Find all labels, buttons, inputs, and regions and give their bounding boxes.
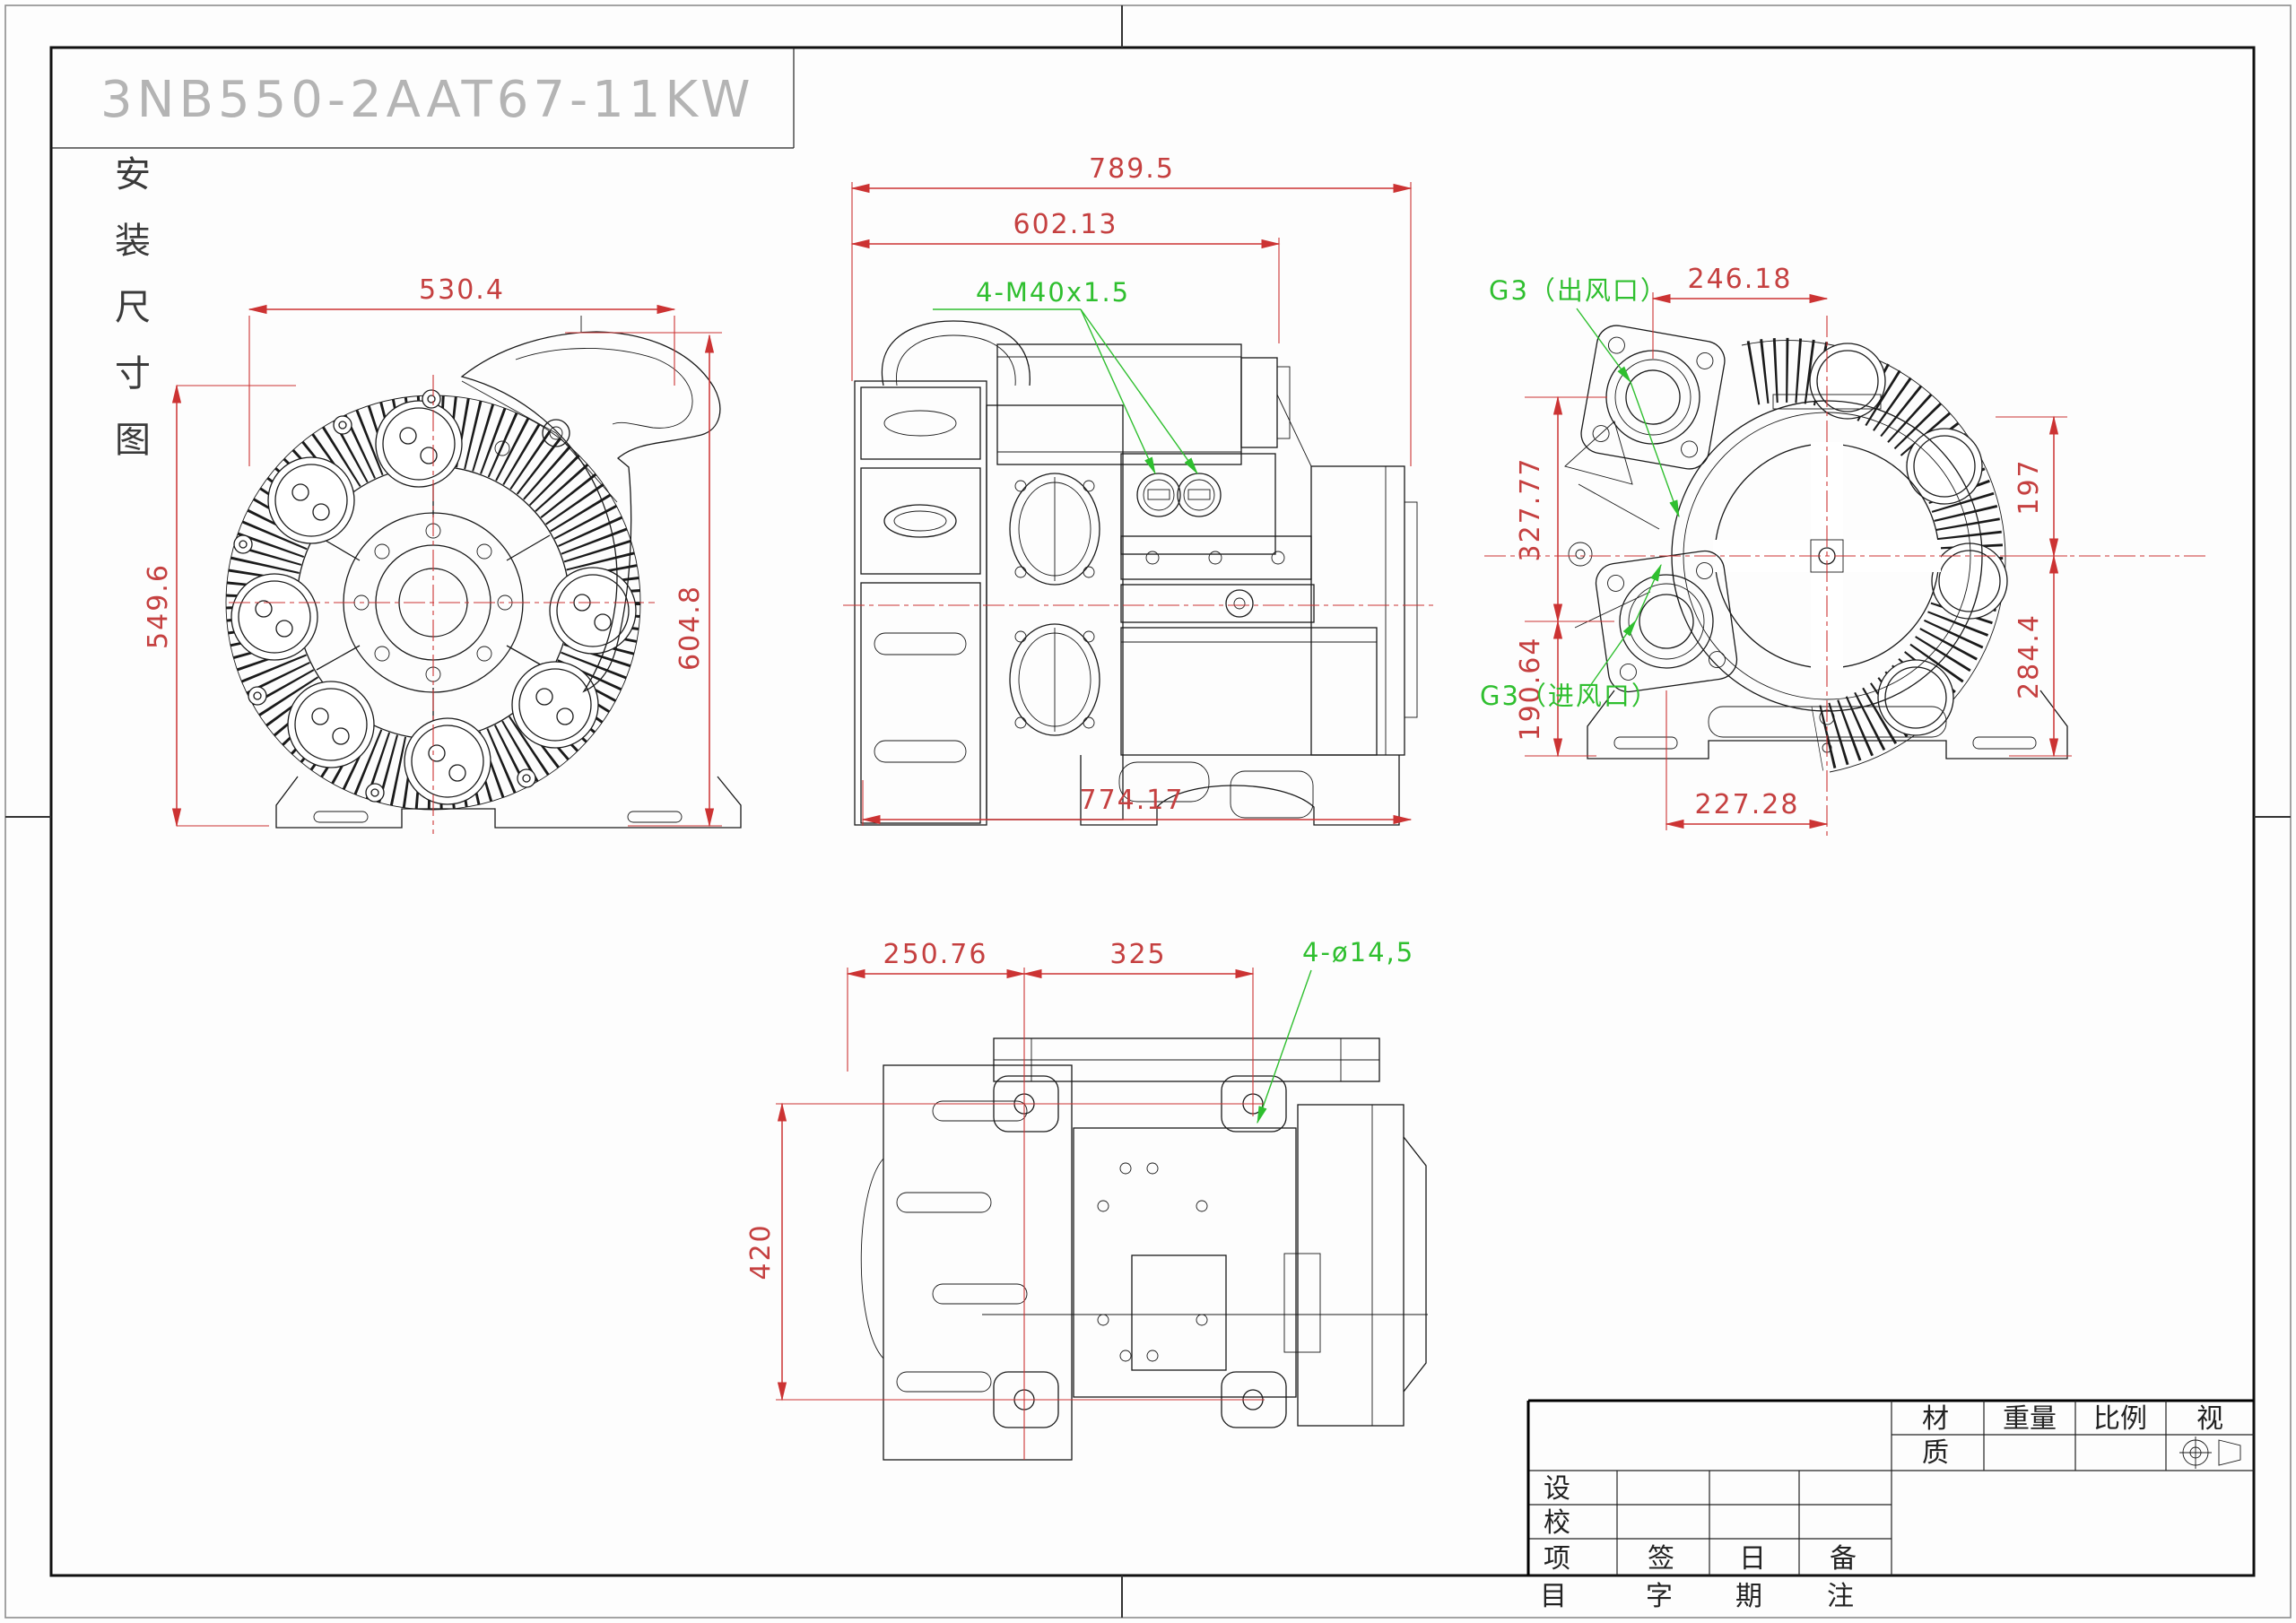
side-gland-block: [1121, 454, 1275, 554]
dim-right-upper-right: 197: [1996, 417, 2067, 556]
title-block-date2: 期: [1735, 1581, 1762, 1612]
dim-right-upper-right-label: 197: [2013, 458, 2045, 515]
projection-symbol-icon: [2179, 1436, 2240, 1469]
title-block-row-design: 设: [1544, 1473, 1570, 1505]
dim-bottom-height: 420: [745, 1104, 1265, 1400]
title-block-weight: 重量: [2003, 1403, 2057, 1435]
sheet-label-char-3: 尺: [115, 287, 151, 328]
dim-bottom-left-label: 250.76: [883, 939, 988, 970]
side-oval-flange-lower: [1010, 624, 1100, 735]
bottom-lugs: [994, 1076, 1286, 1428]
annotation-mount-holes: 4-ø14,5: [1257, 937, 1414, 1123]
title-block-material-bottom: 质: [1922, 1437, 1949, 1469]
sheet-label-char-5: 图: [115, 420, 151, 461]
annotation-mount-holes-label: 4-ø14,5: [1302, 937, 1414, 968]
sheet-label: 安 装 尺 寸 图: [115, 154, 151, 461]
dim-side-total-label: 789.5: [1089, 153, 1175, 185]
right-brackets: [1565, 421, 1659, 628]
dim-side-base: 774.17: [863, 780, 1411, 826]
dim-front-height-label: 549.6: [143, 563, 174, 649]
sheet-label-char-4: 寸: [115, 353, 151, 395]
title-block-row-item: 项: [1544, 1543, 1570, 1575]
sheet-label-char-2: 装: [115, 221, 151, 262]
title-block-remark: 备: [1830, 1543, 1857, 1575]
dim-side-height-label: 604.8: [674, 585, 706, 671]
title-block-view: 视: [2196, 1403, 2223, 1435]
title-block-item2: 目: [1540, 1581, 1567, 1612]
title-block-sign: 签: [1648, 1543, 1674, 1575]
side-view: [843, 321, 1435, 825]
dim-side-upper-label: 602.13: [1013, 209, 1118, 240]
dim-side-base-label: 774.17: [1080, 785, 1185, 816]
dim-side-upper: 602.13: [852, 209, 1279, 343]
side-oval-flange-upper: [1010, 473, 1100, 585]
annotation-glands: 4-M40x1.5: [933, 277, 1197, 473]
bottom-view: [861, 1038, 1428, 1460]
title-block-material-top: 材: [1922, 1403, 1949, 1435]
title-block-date: 日: [1739, 1543, 1766, 1575]
dim-right-lower-right: 284.4: [2009, 556, 2072, 756]
dim-right-upper-left: 327.77: [1515, 397, 1614, 621]
title-block: 材 质 重量 比例 视 设 校 项 签 日 备 目 字 期 注: [1528, 1401, 2254, 1612]
dim-right-upper-left-label: 327.77: [1515, 457, 1546, 562]
title-block-remark2: 注: [1827, 1581, 1854, 1612]
dim-bottom-mid-label: 325: [1109, 939, 1166, 970]
drawing-sheet: 3NB550-2AAT67-11KW 安 装 尺 寸 图: [0, 0, 2296, 1623]
annotation-inlet-label: G3（进风口）: [1480, 681, 1659, 711]
model-title: 3NB550-2AAT67-11KW: [100, 71, 755, 129]
sheet-label-char-1: 安: [115, 154, 151, 195]
dim-right-bottom-label: 227.28: [1695, 789, 1800, 820]
dim-right-bottom: 227.28: [1666, 690, 1827, 830]
dim-front-width-label: 530.4: [419, 274, 505, 306]
dim-bottom-height-label: 420: [745, 1223, 777, 1280]
title-block-scale: 比例: [2093, 1403, 2147, 1435]
right-view: [1484, 316, 2208, 838]
dim-right-lower-right-label: 284.4: [2013, 613, 2045, 699]
dim-bottom-left: 250.76: [848, 939, 1024, 1460]
annotation-glands-label: 4-M40x1.5: [976, 277, 1130, 308]
title-block-sign2: 字: [1646, 1581, 1673, 1612]
cad-canvas: 3NB550-2AAT67-11KW 安 装 尺 寸 图: [0, 0, 2296, 1623]
title-box: 3NB550-2AAT67-11KW: [51, 48, 794, 148]
dim-right-top-label: 246.18: [1688, 264, 1793, 295]
annotation-outlet-label: G3（出风口）: [1489, 275, 1668, 306]
annotation-inlet: G3（进风口）: [1480, 565, 1661, 711]
bottom-plate-holes: [1098, 1163, 1207, 1361]
title-block-row-check: 校: [1544, 1507, 1570, 1539]
front-view: [226, 316, 741, 834]
